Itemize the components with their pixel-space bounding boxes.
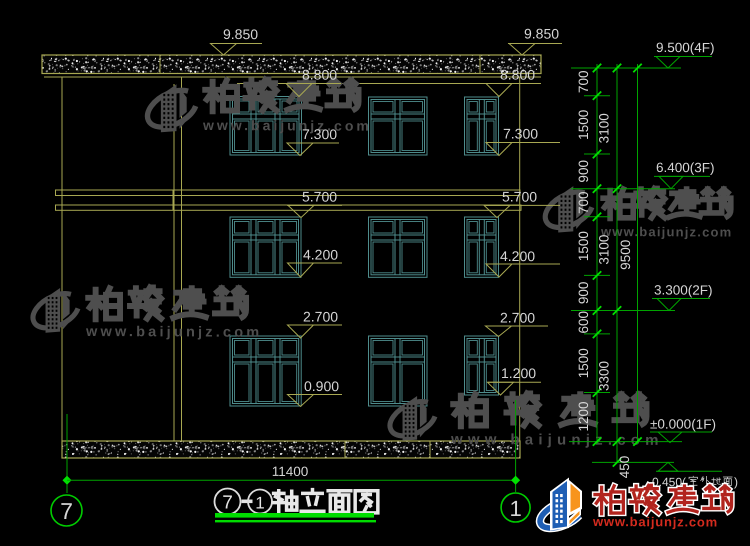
svg-text:7: 7: [222, 492, 233, 513]
svg-text:0.900: 0.900: [304, 378, 339, 394]
svg-text:4.200: 4.200: [500, 248, 535, 264]
svg-text:www.baijunjz.com: www.baijunjz.com: [450, 431, 664, 449]
svg-text:900: 900: [576, 282, 591, 305]
svg-text:www.baijunjz.com: www.baijunjz.com: [202, 117, 372, 134]
svg-text:700: 700: [576, 71, 591, 94]
svg-text:3300: 3300: [597, 361, 612, 391]
svg-text:450: 450: [617, 456, 632, 479]
svg-text:1500: 1500: [576, 348, 591, 378]
svg-text:1500: 1500: [576, 110, 591, 140]
svg-text:7: 7: [60, 498, 73, 524]
svg-text:7.300: 7.300: [503, 126, 538, 142]
svg-text:11400: 11400: [272, 464, 309, 479]
svg-text:1: 1: [509, 496, 521, 521]
svg-text:www.baijunjz.com: www.baijunjz.com: [85, 324, 262, 341]
svg-text:9.850: 9.850: [223, 26, 258, 42]
svg-text:600: 600: [576, 311, 591, 334]
svg-text:www.baijunjz.com: www.baijunjz.com: [592, 514, 718, 530]
svg-text:2.700: 2.700: [500, 310, 535, 326]
svg-text:±0.000(1F): ±0.000(1F): [650, 417, 716, 432]
svg-text:5.700: 5.700: [502, 189, 537, 205]
svg-text:6.400(3F): 6.400(3F): [656, 160, 715, 175]
svg-text:3100: 3100: [597, 235, 612, 265]
svg-text:7.300: 7.300: [302, 126, 337, 142]
svg-text:4.200: 4.200: [303, 247, 338, 263]
svg-text:3.300(2F): 3.300(2F): [654, 283, 713, 298]
svg-text:9.850: 9.850: [524, 26, 559, 42]
svg-text:1200: 1200: [576, 401, 591, 431]
svg-text:8.800: 8.800: [302, 67, 337, 83]
svg-text:3100: 3100: [597, 113, 612, 143]
svg-text:1.200: 1.200: [501, 365, 536, 381]
svg-text:900: 900: [576, 160, 591, 183]
svg-text:9.500(4F): 9.500(4F): [656, 40, 715, 55]
svg-text:9500: 9500: [618, 240, 633, 270]
svg-text:www.baijunjz.com: www.baijunjz.com: [600, 224, 732, 240]
svg-text:1: 1: [255, 493, 265, 512]
svg-text:2.700: 2.700: [303, 309, 338, 325]
svg-text:): ): [734, 475, 738, 489]
svg-text:700: 700: [576, 191, 591, 214]
svg-text:5.700: 5.700: [302, 189, 337, 205]
svg-text:8.800: 8.800: [500, 67, 535, 83]
svg-text:1500: 1500: [576, 231, 591, 261]
